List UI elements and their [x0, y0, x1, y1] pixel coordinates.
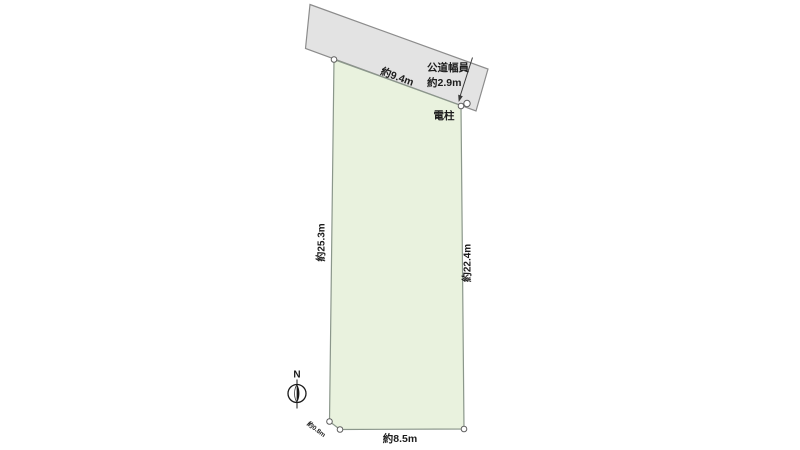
right-edge-length-label: 約22.4m [461, 244, 474, 282]
corner-cut-length-label: 約0.8m [305, 419, 328, 439]
road-width-label-value: 約2.9m [427, 76, 461, 89]
compass-north-label: N [293, 370, 300, 381]
compass-icon: N [288, 370, 306, 409]
utility-pole-label: 電柱 [434, 109, 455, 122]
vertex-marker-top-left [331, 57, 337, 63]
bottom-edge-length-label: 約8.5m [383, 432, 417, 445]
plot-plan-svg: 公道幅員 約2.9m 約9.4m 約25.3m 約22.4m 約8.5m 約0.… [0, 0, 800, 450]
vertex-marker-top-right [458, 103, 464, 109]
road-width-label-title: 公道幅員 [427, 61, 469, 74]
vertex-marker-bottom-right [461, 426, 467, 432]
vertex-marker-bottom-cut-left [327, 419, 333, 425]
vertex-marker-bottom-cut-right [337, 427, 343, 433]
utility-pole-marker [464, 100, 470, 106]
left-edge-length-label: 約25.3m [315, 223, 328, 261]
land-plot-diagram: 公道幅員 約2.9m 約9.4m 約25.3m 約22.4m 約8.5m 約0.… [0, 0, 800, 450]
